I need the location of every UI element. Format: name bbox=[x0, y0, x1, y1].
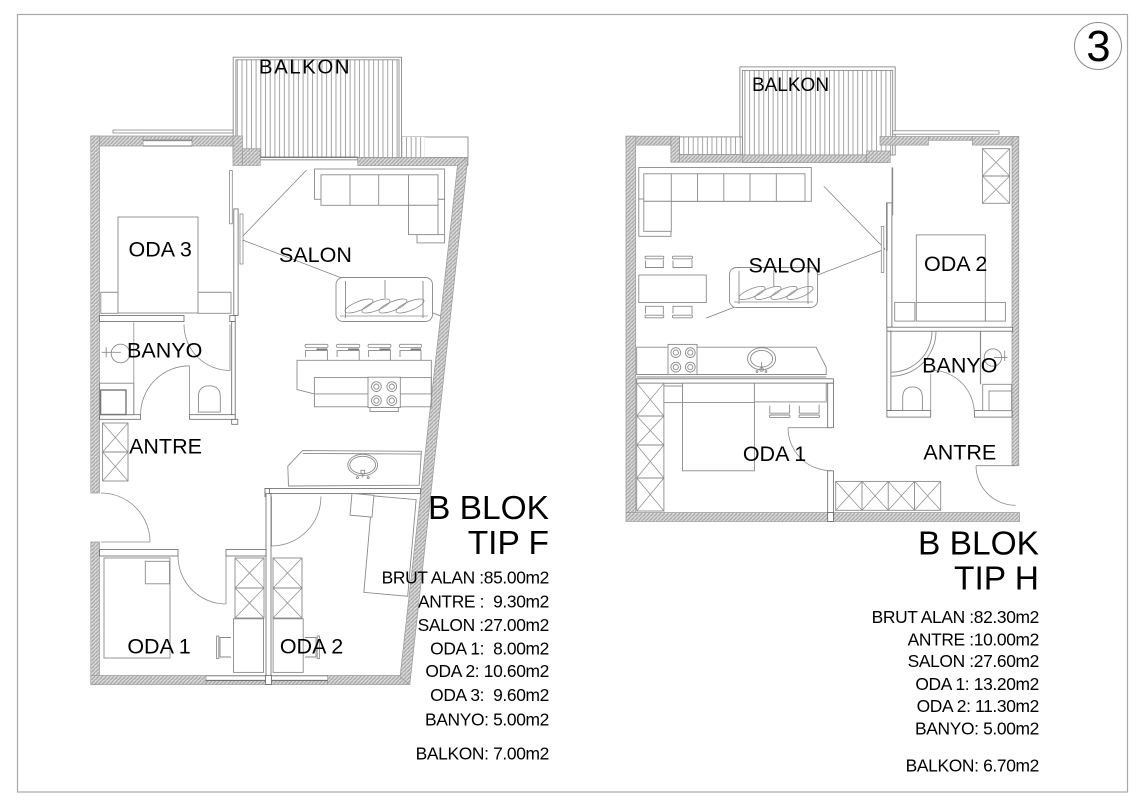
svg-text:BANYO: BANYO bbox=[922, 354, 997, 378]
svg-text:ODA 2: ODA 2 bbox=[280, 635, 343, 659]
svg-text:B BLOK: B BLOK bbox=[918, 526, 1039, 563]
svg-text:BALKON: 6.70m2: BALKON: 6.70m2 bbox=[906, 756, 1039, 776]
svg-text:ANTRE :10.00m2: ANTRE :10.00m2 bbox=[908, 630, 1039, 650]
svg-text:BALKON: BALKON bbox=[259, 56, 351, 79]
svg-text:B BLOK: B BLOK bbox=[428, 490, 549, 527]
svg-text:ODA 3: 9.60m2: ODA 3: 9.60m2 bbox=[430, 685, 549, 705]
svg-text:ODA 1: 8.00m2: ODA 1: 8.00m2 bbox=[430, 639, 549, 659]
svg-text:SALON: SALON bbox=[749, 254, 822, 278]
svg-text:3: 3 bbox=[1086, 23, 1110, 71]
svg-text:SALON: SALON bbox=[279, 243, 352, 267]
svg-text:ANTRE: ANTRE bbox=[923, 441, 996, 465]
svg-text:ODA 2: 11.30m2: ODA 2: 11.30m2 bbox=[917, 696, 1039, 716]
svg-text:BALKON: 7.00m2: BALKON: 7.00m2 bbox=[416, 744, 549, 764]
svg-text:ODA 2: ODA 2 bbox=[924, 252, 987, 276]
svg-text:TIP H: TIP H bbox=[954, 561, 1039, 598]
svg-text:ODA 2: 10.60m2: ODA 2: 10.60m2 bbox=[425, 661, 549, 681]
svg-text:SALON :27.00m2: SALON :27.00m2 bbox=[418, 615, 549, 635]
svg-text:BANYO: BANYO bbox=[127, 339, 202, 363]
svg-text:ODA 1: ODA 1 bbox=[743, 442, 806, 466]
svg-text:BANYO: 5.00m2: BANYO: 5.00m2 bbox=[425, 710, 549, 730]
svg-text:ODA 1: ODA 1 bbox=[127, 635, 190, 659]
svg-text:BALKON: BALKON bbox=[752, 75, 829, 96]
svg-text:ODA 3: ODA 3 bbox=[129, 238, 192, 262]
svg-text:TIP F: TIP F bbox=[468, 525, 549, 562]
svg-text:BRUT ALAN :82.30m2: BRUT ALAN :82.30m2 bbox=[872, 607, 1039, 627]
svg-text:BANYO: 5.00m2: BANYO: 5.00m2 bbox=[915, 719, 1039, 739]
svg-text:SALON :27.60m2: SALON :27.60m2 bbox=[908, 651, 1039, 671]
svg-text:ODA 1: 13.20m2: ODA 1: 13.20m2 bbox=[915, 674, 1039, 694]
svg-text:ANTRE: ANTRE bbox=[129, 435, 202, 459]
svg-text:BRUT ALAN :85.00m2: BRUT ALAN :85.00m2 bbox=[382, 568, 549, 588]
svg-text:ANTRE : 9.30m2: ANTRE : 9.30m2 bbox=[418, 592, 549, 612]
